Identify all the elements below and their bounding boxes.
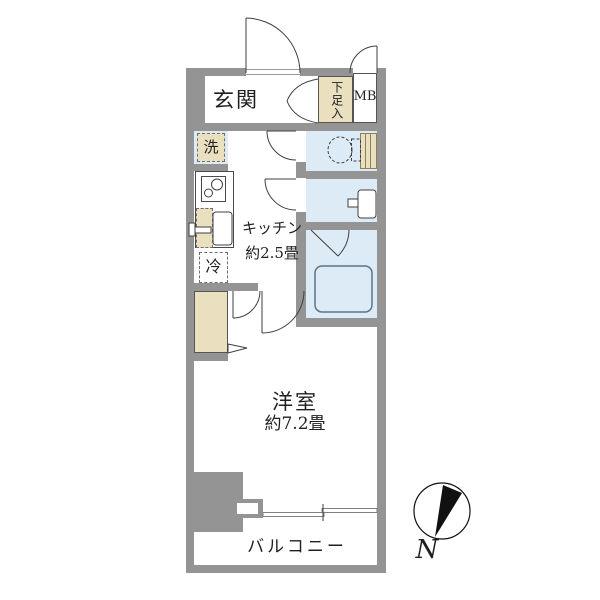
meter-box-door-swing-icon [350,46,377,73]
shoe-storage-label: 下足入 [329,81,343,120]
room-door-swing-icon [262,291,304,333]
kitchen-sink-icon [189,212,232,245]
washbasin-icon [348,190,376,218]
sliding-window-icon [263,504,377,521]
bathtub-icon [315,266,372,312]
powder-room-door-swing-icon [265,179,296,210]
balcony-label: バルコニー [227,538,367,558]
wc-door-swing-icon [267,131,296,160]
meter-box-label: MB [353,90,377,105]
toilet-icon [328,137,361,163]
closet-door-swing-icon [228,291,260,353]
kitchen-label: キッチン [236,220,308,237]
closet-door-arrow-icon [228,344,247,353]
stove-icon [205,179,223,197]
compass-north-icon [414,483,470,539]
room-size-label: 約7.2畳 [245,415,345,435]
refrigerator-label: 冷 [199,258,228,276]
bathroom-door-swing-icon [311,230,349,256]
front-door-swing-icon [246,18,300,73]
plan-linework [0,0,600,600]
kitchen-size-label: 約2.5畳 [236,245,308,262]
room-label: 洋室 [245,390,345,414]
shoe-cabinet-doors-icon [287,79,318,123]
entrance-label: 玄関 [207,88,265,112]
compass-n-label: N [412,536,442,566]
washer-label: 洗 [197,139,225,156]
floor-plan: 玄関 下足入 MB 洗 冷 キッチン 約2.5畳 洋室 約7.2畳 バルコニー … [0,0,600,600]
wc-cabinet-hatch-icon [366,134,371,168]
